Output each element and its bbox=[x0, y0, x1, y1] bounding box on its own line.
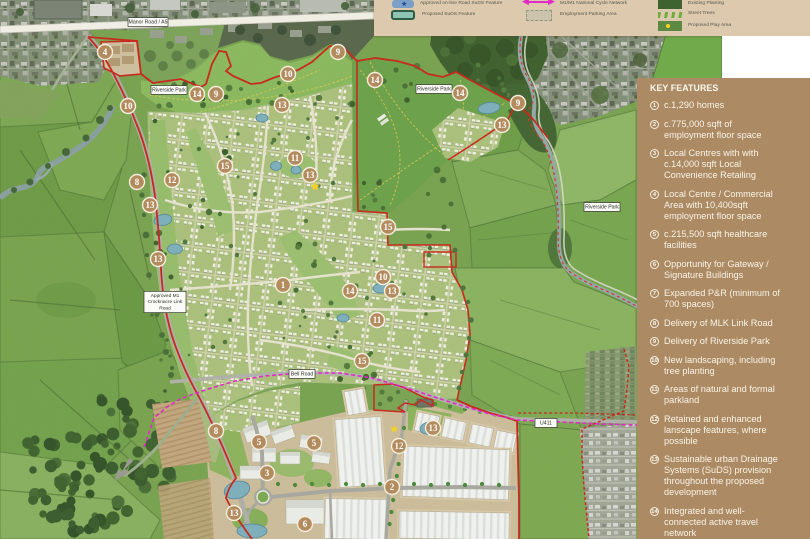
svg-text:13: 13 bbox=[278, 100, 288, 110]
svg-text:13: 13 bbox=[154, 254, 164, 264]
svg-text:11: 11 bbox=[291, 153, 300, 163]
svg-text:3: 3 bbox=[265, 468, 270, 478]
svg-text:9: 9 bbox=[336, 47, 341, 57]
svg-text:10: 10 bbox=[379, 272, 389, 282]
svg-text:4: 4 bbox=[103, 47, 108, 57]
svg-text:12: 12 bbox=[168, 175, 178, 185]
svg-text:11: 11 bbox=[373, 315, 382, 325]
svg-text:14: 14 bbox=[346, 286, 356, 296]
svg-text:13: 13 bbox=[230, 508, 240, 518]
svg-text:6: 6 bbox=[303, 519, 308, 529]
svg-text:12: 12 bbox=[395, 441, 405, 451]
svg-text:1: 1 bbox=[281, 280, 286, 290]
svg-text:14: 14 bbox=[456, 88, 466, 98]
svg-text:13: 13 bbox=[498, 120, 508, 130]
svg-text:8: 8 bbox=[135, 177, 140, 187]
svg-text:13: 13 bbox=[146, 200, 156, 210]
svg-text:15: 15 bbox=[384, 222, 394, 232]
svg-text:13: 13 bbox=[388, 286, 398, 296]
svg-text:9: 9 bbox=[214, 89, 219, 99]
svg-text:13: 13 bbox=[306, 170, 316, 180]
svg-text:15: 15 bbox=[358, 356, 368, 366]
svg-text:9: 9 bbox=[516, 98, 521, 108]
svg-text:5: 5 bbox=[312, 438, 317, 448]
svg-text:15: 15 bbox=[221, 161, 231, 171]
svg-text:14: 14 bbox=[193, 89, 203, 99]
svg-text:5: 5 bbox=[257, 437, 262, 447]
svg-text:10: 10 bbox=[284, 69, 294, 79]
svg-text:13: 13 bbox=[429, 423, 439, 433]
svg-text:10: 10 bbox=[124, 101, 134, 111]
svg-text:14: 14 bbox=[371, 75, 381, 85]
svg-text:2: 2 bbox=[390, 482, 395, 492]
svg-text:8: 8 bbox=[214, 426, 219, 436]
